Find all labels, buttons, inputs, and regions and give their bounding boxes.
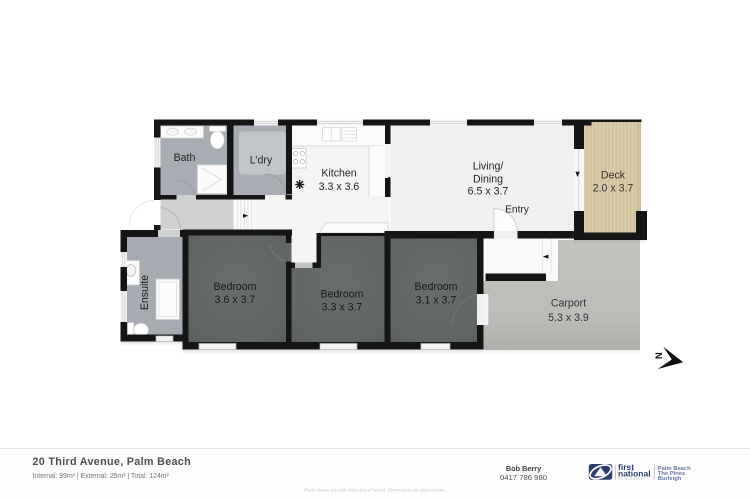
svg-text:Carport: Carport [551, 297, 586, 309]
svg-text:Bob Berry: Bob Berry [506, 464, 542, 473]
svg-text:REAL ESTATE: REAL ESTATE [618, 477, 646, 481]
svg-text:Bedroom: Bedroom [214, 281, 257, 293]
svg-text:Entry: Entry [505, 204, 530, 215]
svg-text:L’dry: L’dry [250, 155, 273, 167]
svg-text:2.0 x 3.7: 2.0 x 3.7 [593, 183, 634, 195]
svg-text:Bedroom: Bedroom [321, 289, 364, 301]
svg-text:Living/: Living/ [473, 161, 504, 173]
svg-text:6.5 x 3.7: 6.5 x 3.7 [468, 186, 509, 198]
svg-text:3.1 x 3.7: 3.1 x 3.7 [416, 294, 457, 306]
svg-text:Ensuite: Ensuite [139, 275, 151, 310]
svg-text:Internal: 99m² | External: 25m: Internal: 99m² | External: 25m² | Total:… [33, 473, 170, 480]
svg-text:20 Third Avenue, Palm Beach: 20 Third Avenue, Palm Beach [33, 456, 192, 468]
svg-text:Dining: Dining [473, 174, 503, 186]
svg-text:Kitchen: Kitchen [321, 168, 356, 180]
svg-text:3.3 x 3.6: 3.3 x 3.6 [319, 181, 360, 193]
svg-text:Burleigh: Burleigh [658, 476, 682, 482]
svg-text:Deck: Deck [601, 170, 626, 182]
svg-text:5.3 x 3.9: 5.3 x 3.9 [548, 312, 589, 324]
svg-text:3.3 x 3.7: 3.3 x 3.7 [322, 302, 363, 314]
svg-text:Bath: Bath [174, 152, 196, 164]
svg-text:Plans shown are only indicativ: Plans shown are only indicative of layou… [304, 487, 446, 492]
svg-text:0417 786 980: 0417 786 980 [500, 473, 547, 482]
svg-text:3.6 x 3.7: 3.6 x 3.7 [215, 294, 256, 306]
svg-text:Bedroom: Bedroom [415, 281, 458, 293]
svg-text:N: N [653, 352, 664, 359]
